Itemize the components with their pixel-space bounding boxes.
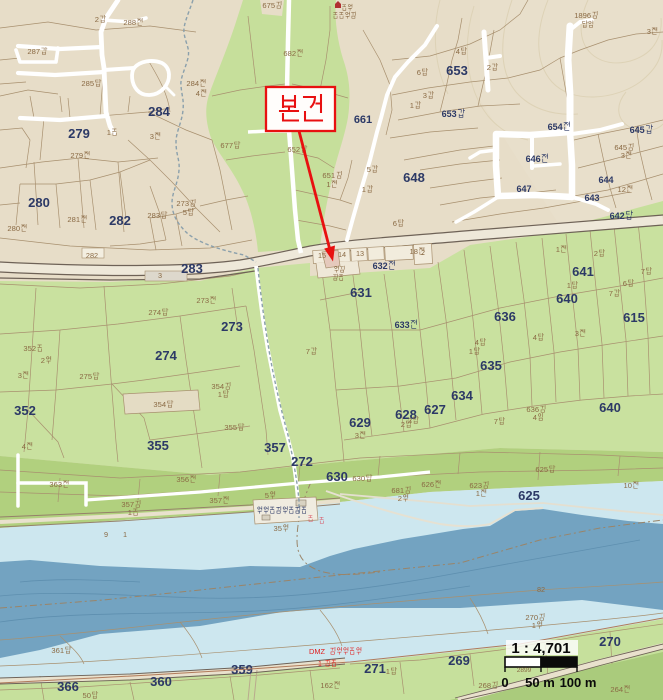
svg-text:280: 280 — [7, 224, 20, 233]
svg-text:632: 632 — [373, 261, 388, 271]
svg-text:9: 9 — [104, 530, 108, 539]
svg-text:635: 635 — [480, 358, 502, 373]
svg-text:15: 15 — [318, 251, 326, 260]
svg-text:1: 1 — [469, 347, 473, 356]
svg-text:50 m: 50 m — [525, 675, 555, 690]
svg-text:6: 6 — [623, 279, 627, 288]
svg-text:653: 653 — [446, 63, 468, 78]
svg-text:288: 288 — [123, 18, 136, 27]
svg-text:3: 3 — [18, 371, 22, 380]
svg-text:3: 3 — [621, 151, 625, 160]
svg-text:1: 1 — [123, 530, 127, 539]
svg-text:12: 12 — [618, 185, 626, 194]
svg-text:361: 361 — [51, 646, 64, 655]
svg-text:283: 283 — [147, 211, 160, 220]
svg-text:677: 677 — [220, 141, 233, 150]
svg-text:352: 352 — [23, 344, 36, 353]
svg-text:633: 633 — [395, 320, 410, 330]
svg-text:1: 1 — [128, 508, 132, 517]
svg-text:1: 1 — [410, 101, 414, 110]
svg-text:3: 3 — [355, 431, 359, 440]
svg-text:287: 287 — [27, 47, 40, 56]
svg-text:269: 269 — [448, 653, 470, 668]
svg-text:270: 270 — [599, 634, 621, 649]
svg-text:10: 10 — [624, 481, 632, 490]
svg-text:629: 629 — [349, 415, 371, 430]
svg-text:273: 273 — [221, 319, 243, 334]
svg-text:2: 2 — [594, 249, 598, 258]
svg-text:3: 3 — [150, 132, 154, 141]
svg-text:1 : 4,701: 1 : 4,701 — [511, 640, 570, 657]
svg-text:3: 3 — [158, 271, 162, 280]
svg-text:3: 3 — [647, 27, 651, 36]
svg-text:1: 1 — [476, 489, 480, 498]
svg-text:35: 35 — [274, 524, 282, 533]
svg-text:645: 645 — [630, 125, 645, 135]
svg-text:7: 7 — [609, 289, 613, 298]
svg-text:272: 272 — [291, 454, 313, 469]
svg-text:6: 6 — [417, 68, 421, 77]
svg-text:82: 82 — [537, 585, 545, 594]
svg-text:0: 0 — [501, 675, 508, 690]
svg-text:682: 682 — [283, 49, 296, 58]
svg-text:2: 2 — [421, 248, 425, 257]
svg-text:648: 648 — [403, 170, 425, 185]
svg-text:273: 273 — [196, 296, 209, 305]
svg-text:6: 6 — [393, 219, 397, 228]
svg-text:646: 646 — [526, 154, 541, 164]
svg-text:274: 274 — [148, 308, 161, 317]
svg-text:643: 643 — [584, 193, 599, 203]
svg-text:630: 630 — [326, 469, 348, 484]
svg-text:279: 279 — [68, 126, 90, 141]
svg-text:1: 1 — [107, 128, 111, 137]
svg-text:652: 652 — [287, 145, 300, 154]
svg-text:654: 654 — [548, 122, 563, 132]
svg-text:2: 2 — [408, 416, 412, 425]
svg-text:4: 4 — [456, 47, 460, 56]
svg-text:4: 4 — [475, 338, 479, 347]
svg-text:631: 631 — [350, 285, 372, 300]
svg-text:615: 615 — [623, 310, 645, 325]
svg-text:264: 264 — [610, 685, 623, 694]
svg-text:5: 5 — [183, 208, 187, 217]
svg-text:1: 1 — [556, 245, 560, 254]
svg-text:282: 282 — [109, 213, 131, 228]
svg-text:281: 281 — [67, 215, 80, 224]
svg-text:2899: 2899 — [517, 667, 532, 674]
svg-text:283: 283 — [181, 261, 203, 276]
svg-text:641: 641 — [572, 264, 594, 279]
svg-text:634: 634 — [451, 388, 473, 403]
svg-text:661: 661 — [354, 114, 372, 126]
svg-text:630: 630 — [352, 474, 365, 483]
svg-text:279: 279 — [70, 151, 83, 160]
svg-text:3: 3 — [423, 91, 427, 100]
svg-text:4: 4 — [196, 89, 200, 98]
svg-text:640: 640 — [599, 400, 621, 415]
svg-text:271: 271 — [364, 661, 386, 676]
svg-text:626: 626 — [421, 480, 434, 489]
svg-text:356: 356 — [176, 475, 189, 484]
svg-text:366: 366 — [57, 679, 79, 694]
svg-text:2: 2 — [398, 494, 402, 503]
svg-text:627: 627 — [424, 402, 446, 417]
svg-text:50: 50 — [83, 691, 91, 700]
svg-text:13: 13 — [356, 249, 364, 258]
svg-text:4: 4 — [22, 442, 26, 451]
svg-text:363: 363 — [49, 480, 62, 489]
svg-text:284: 284 — [148, 104, 170, 119]
svg-text:1896: 1896 — [574, 11, 591, 20]
svg-text:3: 3 — [575, 329, 579, 338]
svg-text:642: 642 — [610, 211, 625, 221]
svg-text:625: 625 — [535, 465, 548, 474]
svg-text:640: 640 — [556, 291, 578, 306]
svg-text:5: 5 — [265, 491, 269, 500]
svg-text:354: 354 — [153, 400, 166, 409]
svg-text:268: 268 — [478, 681, 491, 690]
svg-text:274: 274 — [155, 348, 177, 363]
svg-text:7: 7 — [494, 417, 498, 426]
svg-text:2: 2 — [487, 63, 491, 72]
svg-text:4: 4 — [533, 333, 537, 342]
svg-text:284: 284 — [186, 79, 199, 88]
svg-text:1: 1 — [362, 185, 366, 194]
svg-text:355: 355 — [224, 423, 237, 432]
svg-text:275: 275 — [79, 372, 92, 381]
svg-text:18: 18 — [410, 247, 418, 256]
svg-text:5: 5 — [367, 165, 371, 174]
svg-text:1: 1 — [386, 667, 390, 676]
svg-text:653: 653 — [442, 109, 457, 119]
svg-text:357: 357 — [264, 440, 286, 455]
svg-text:1: 1 — [567, 281, 571, 290]
svg-text:4: 4 — [533, 413, 537, 422]
svg-text:2: 2 — [95, 15, 99, 24]
svg-text:357: 357 — [209, 496, 222, 505]
svg-text:DMZ: DMZ — [309, 647, 325, 656]
svg-text:273: 273 — [176, 199, 189, 208]
svg-text:285: 285 — [81, 79, 94, 88]
svg-text:100 m: 100 m — [560, 675, 597, 690]
svg-text:355: 355 — [147, 438, 169, 453]
svg-text:280: 280 — [28, 195, 50, 210]
svg-text:7: 7 — [306, 347, 310, 356]
svg-text:647: 647 — [516, 184, 531, 194]
svg-text:162: 162 — [320, 681, 333, 690]
svg-text:636: 636 — [494, 309, 516, 324]
svg-text:7: 7 — [641, 267, 645, 276]
svg-text:644: 644 — [598, 175, 613, 185]
svg-text:352: 352 — [14, 403, 36, 418]
svg-text:675: 675 — [262, 1, 275, 10]
svg-text:1: 1 — [532, 621, 536, 630]
svg-text:1: 1 — [326, 180, 330, 189]
svg-text:628: 628 — [395, 407, 417, 422]
svg-text:1: 1 — [218, 390, 222, 399]
svg-text:2: 2 — [41, 356, 45, 365]
svg-text:2: 2 — [401, 420, 405, 429]
svg-text:651: 651 — [322, 171, 335, 180]
svg-text:14: 14 — [338, 250, 346, 259]
svg-text:625: 625 — [518, 488, 540, 503]
svg-text:360: 360 — [150, 674, 172, 689]
svg-text:282: 282 — [86, 251, 98, 260]
